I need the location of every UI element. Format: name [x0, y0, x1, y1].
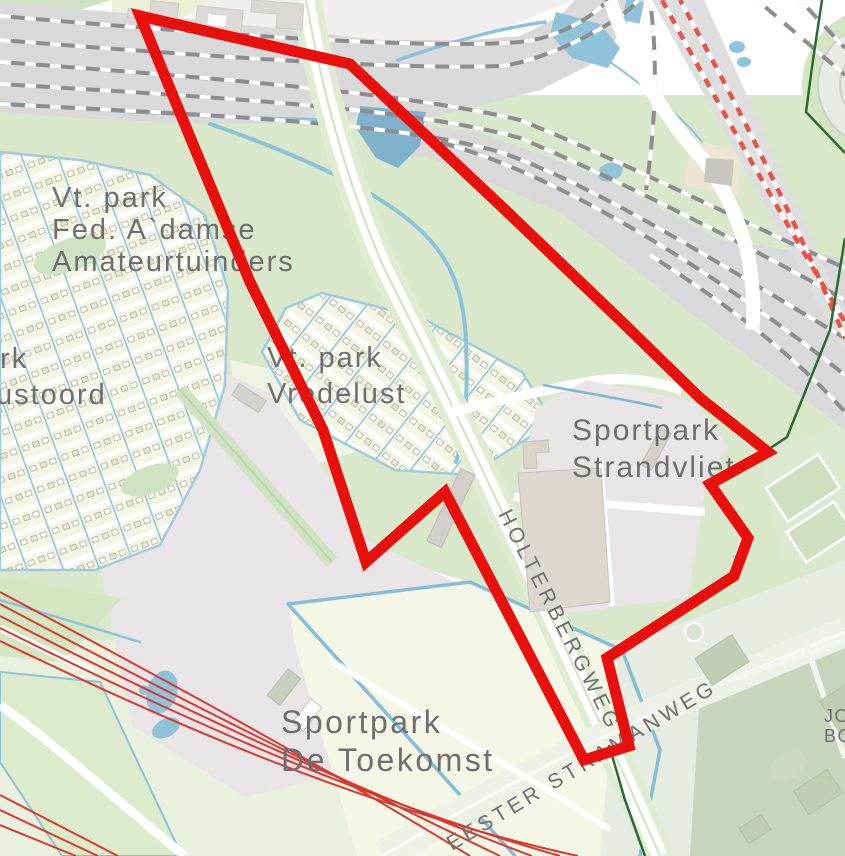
label-toekomst-2: De Toekomst: [281, 742, 495, 778]
label-strandvliet-1: Sportpark: [572, 414, 720, 447]
label-edge-2: BO: [824, 726, 845, 746]
label-vredelust-2: Vredelust: [267, 378, 406, 410]
label-rustoord-2: ustoord: [0, 379, 107, 411]
label-amateurtuinders-3: Amateurtuinders: [52, 246, 295, 278]
label-edge-1: JO: [824, 706, 845, 726]
label-toekomst-1: Sportpark: [281, 704, 442, 740]
label-amateurtuinders-1: Vt. park: [52, 182, 168, 214]
label-rustoord-1: ark: [0, 343, 28, 375]
roundabout: [685, 623, 703, 641]
topographic-map: Vt. park Fed. A`damse Amateurtuinders ar…: [0, 0, 845, 856]
map-canvas[interactable]: Vt. park Fed. A`damse Amateurtuinders ar…: [0, 0, 845, 856]
